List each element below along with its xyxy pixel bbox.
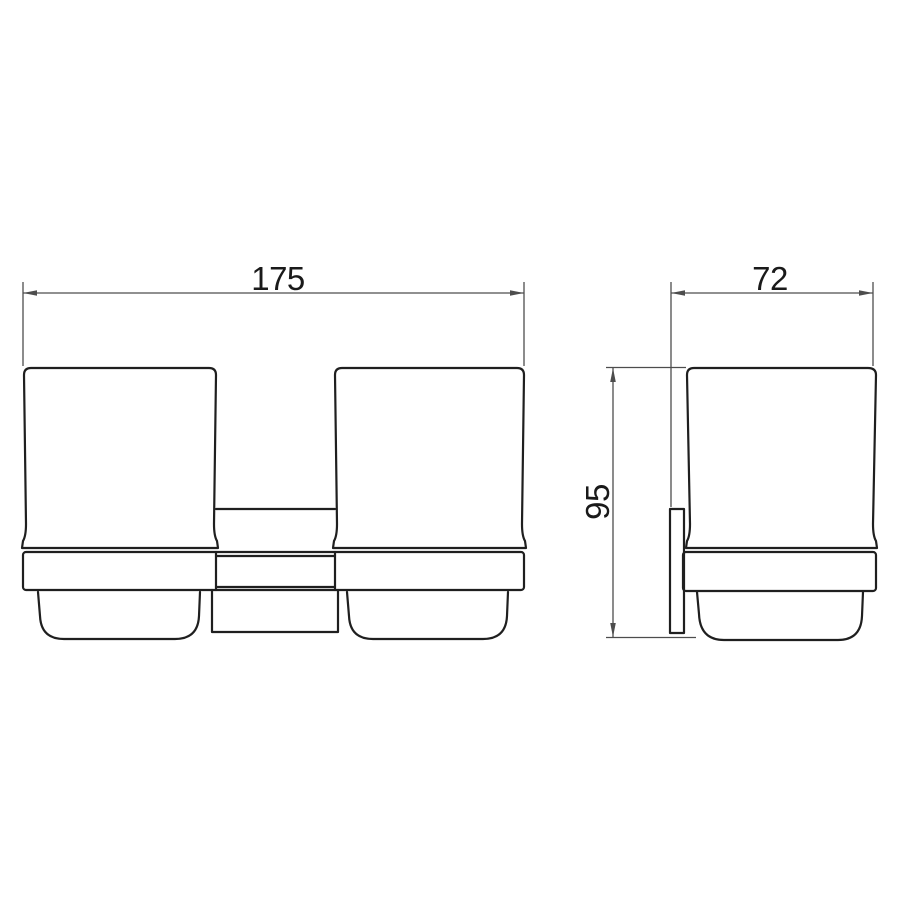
side-holder-ring (697, 592, 863, 640)
side-cup-outline (686, 368, 877, 548)
front-mounting-rail (23, 552, 524, 590)
arrow-72-left-icon (671, 290, 685, 296)
front-left-cup-outline (22, 368, 218, 548)
arrow-175-left-icon (23, 290, 37, 296)
dim-label-overall-width: 175 (251, 260, 305, 297)
dimension-labels: 175 72 95 (251, 260, 788, 520)
arrow-95-top-icon (610, 368, 616, 382)
dimension-height (606, 368, 696, 638)
side-view (670, 368, 877, 640)
arrow-72-right-icon (859, 290, 873, 296)
dim-label-height: 95 (579, 484, 616, 520)
front-right-holder-ring (347, 592, 508, 639)
front-left-holder-ring (38, 592, 200, 639)
dimensions: 175 72 95 (23, 260, 873, 638)
arrow-95-bottom-icon (610, 623, 616, 637)
drawing-page: 175 72 95 (0, 0, 900, 900)
front-wall-bracket-lower (212, 590, 338, 632)
technical-drawing-canvas: 175 72 95 (0, 0, 900, 900)
dim-label-depth: 72 (752, 260, 788, 297)
dimension-depth (671, 282, 873, 507)
front-view (22, 368, 526, 639)
side-mounting-rail (683, 552, 876, 591)
arrow-175-right-icon (510, 290, 524, 296)
front-right-cup-outline (333, 368, 526, 548)
dimension-arrowheads (23, 290, 873, 637)
